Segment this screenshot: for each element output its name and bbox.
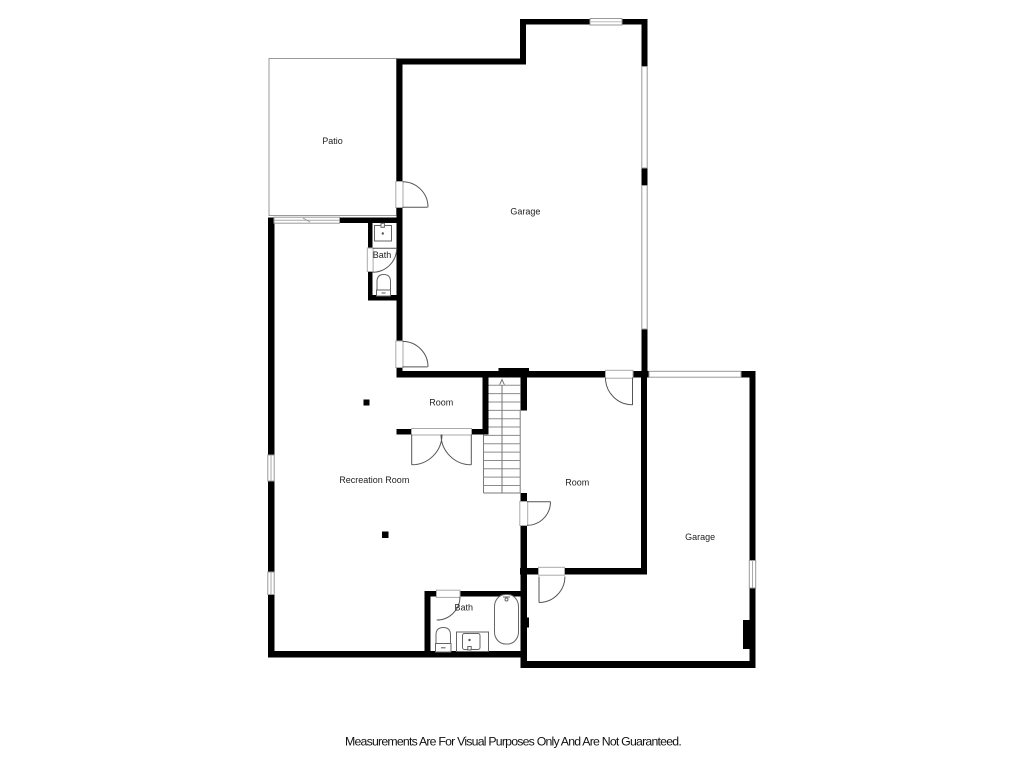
svg-text:Bath: Bath [454, 603, 473, 613]
svg-text:Recreation Room: Recreation Room [339, 475, 409, 485]
svg-text:Garage: Garage [685, 532, 715, 542]
svg-text:Patio: Patio [322, 136, 343, 146]
svg-text:Room: Room [429, 398, 453, 408]
svg-text:Bath: Bath [373, 250, 392, 260]
svg-text:Room: Room [565, 477, 589, 487]
svg-text:Garage: Garage [510, 207, 540, 217]
svg-text:Measurements Are For Visual Pu: Measurements Are For Visual Purposes Onl… [345, 735, 681, 749]
